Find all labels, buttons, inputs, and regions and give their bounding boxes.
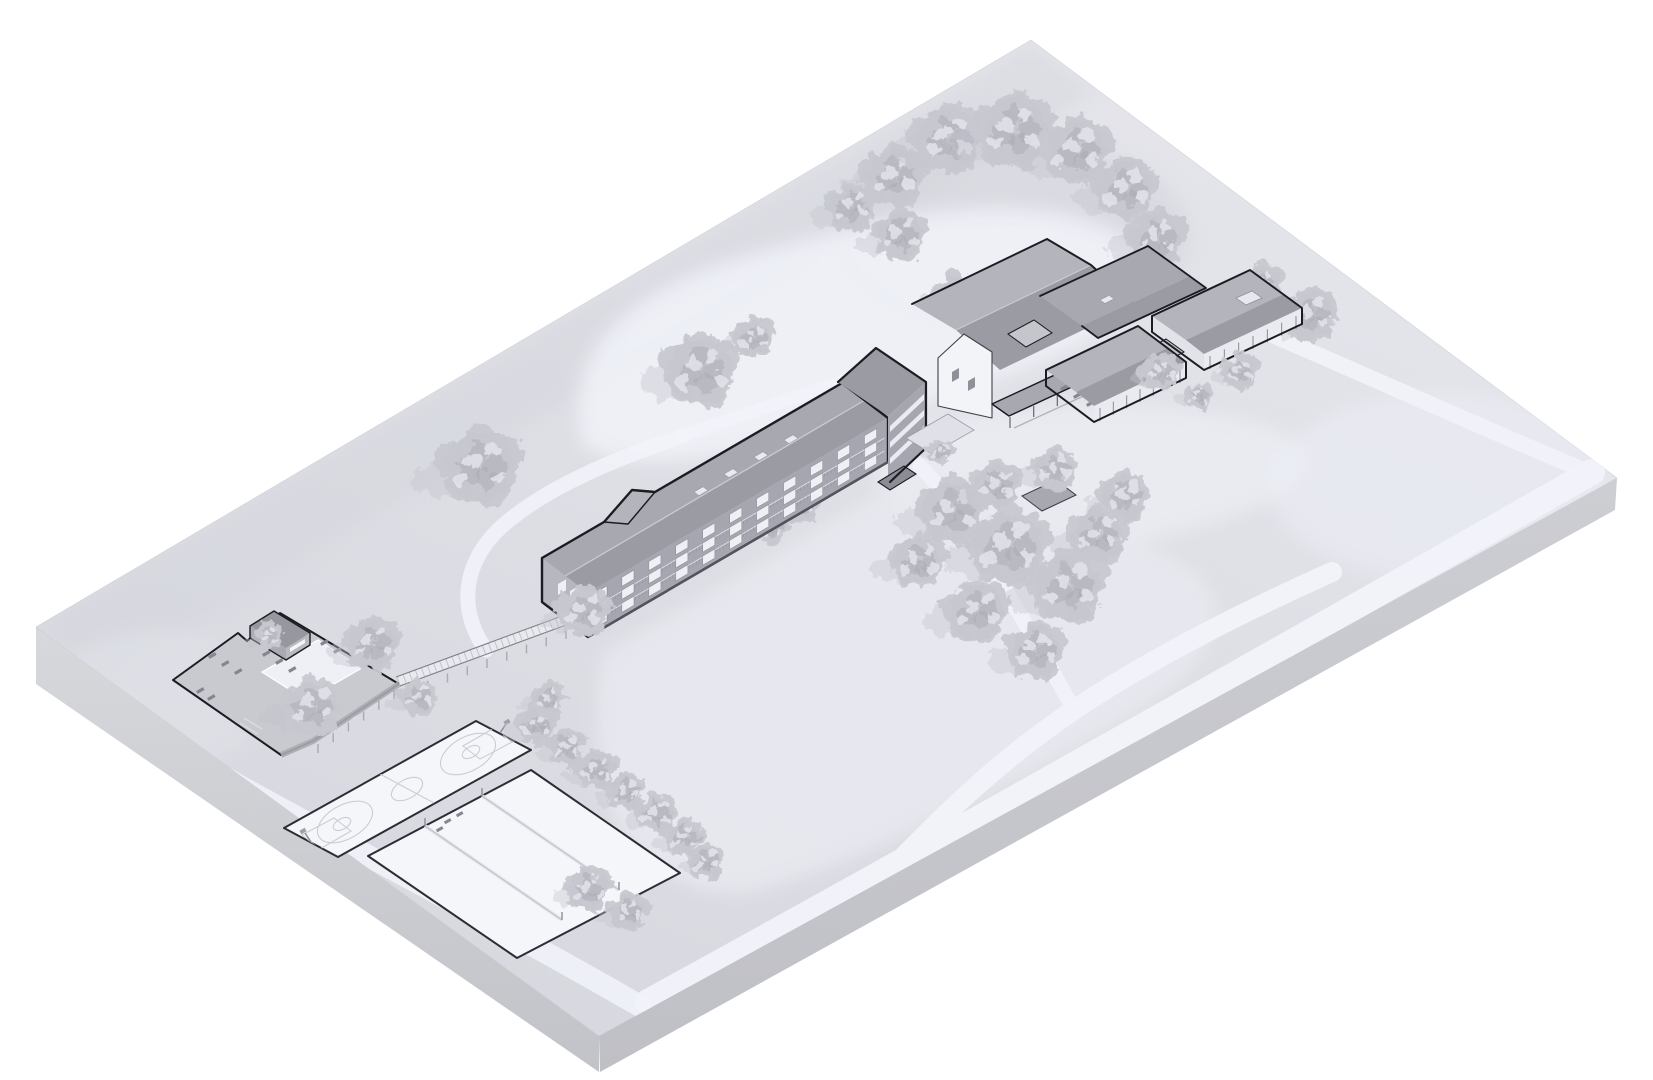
rendering-canvas: Monochrome isometric site model on a flo… bbox=[0, 0, 1653, 1080]
site-plan-rendering: Monochrome isometric site model on a flo… bbox=[0, 0, 1653, 1080]
